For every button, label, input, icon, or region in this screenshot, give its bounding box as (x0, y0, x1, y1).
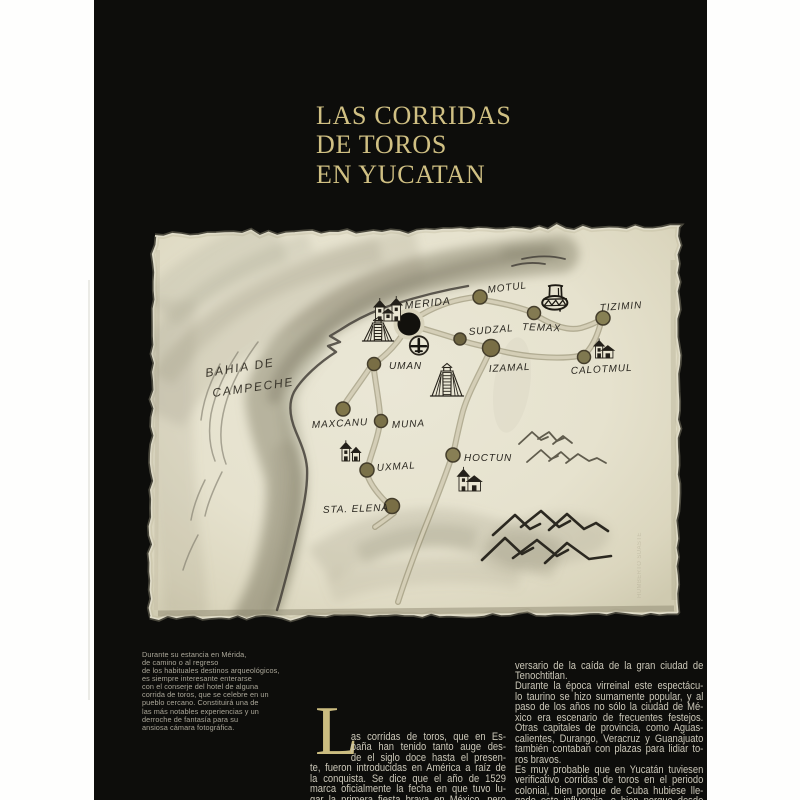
svg-text:MUNA: MUNA (392, 418, 426, 431)
svg-text:IZAMAL: IZAMAL (489, 362, 531, 375)
svg-text:UMAN: UMAN (389, 361, 422, 372)
svg-text:HOCTUN: HOCTUN (464, 453, 512, 464)
svg-text:STA. ELENA: STA. ELENA (323, 503, 389, 516)
svg-text:TEMAX: TEMAX (522, 322, 561, 334)
svg-text:HUMBERTO SUASTE: HUMBERTO SUASTE (637, 532, 643, 598)
